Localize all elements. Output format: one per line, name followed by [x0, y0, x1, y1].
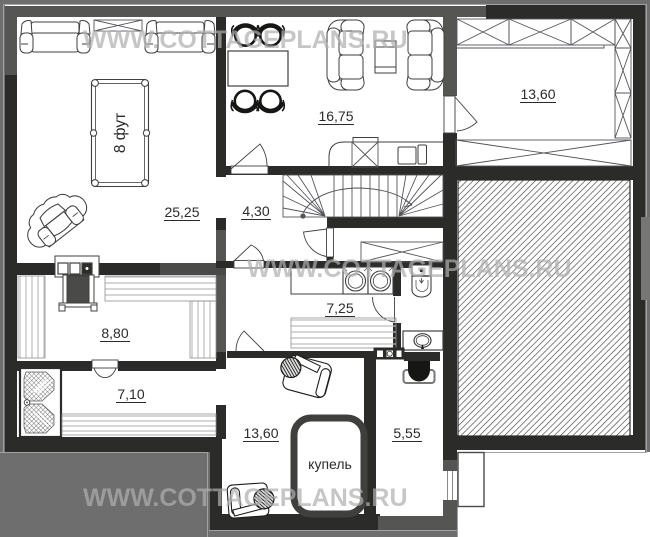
svg-text:5,55: 5,55 [393, 425, 420, 441]
svg-text:купель: купель [308, 456, 352, 472]
svg-text:13,60: 13,60 [520, 86, 555, 102]
svg-text:7,25: 7,25 [326, 300, 353, 316]
svg-text:WWW.COTTAGEPLANS.RU: WWW.COTTAGEPLANS.RU [83, 26, 408, 54]
svg-text:4,30: 4,30 [242, 203, 269, 219]
svg-text:8 фут: 8 фут [112, 113, 129, 153]
svg-text:25,25: 25,25 [164, 204, 199, 220]
svg-text:13,60: 13,60 [243, 425, 278, 441]
svg-text:7,10: 7,10 [117, 386, 144, 402]
svg-text:WWW.COTTAGEPLANS.RU: WWW.COTTAGEPLANS.RU [83, 484, 408, 512]
svg-text:8,80: 8,80 [101, 325, 128, 341]
svg-text:16,75: 16,75 [318, 108, 353, 124]
svg-text:WWW.COTTAGEPLANS.RU: WWW.COTTAGEPLANS.RU [247, 255, 572, 283]
